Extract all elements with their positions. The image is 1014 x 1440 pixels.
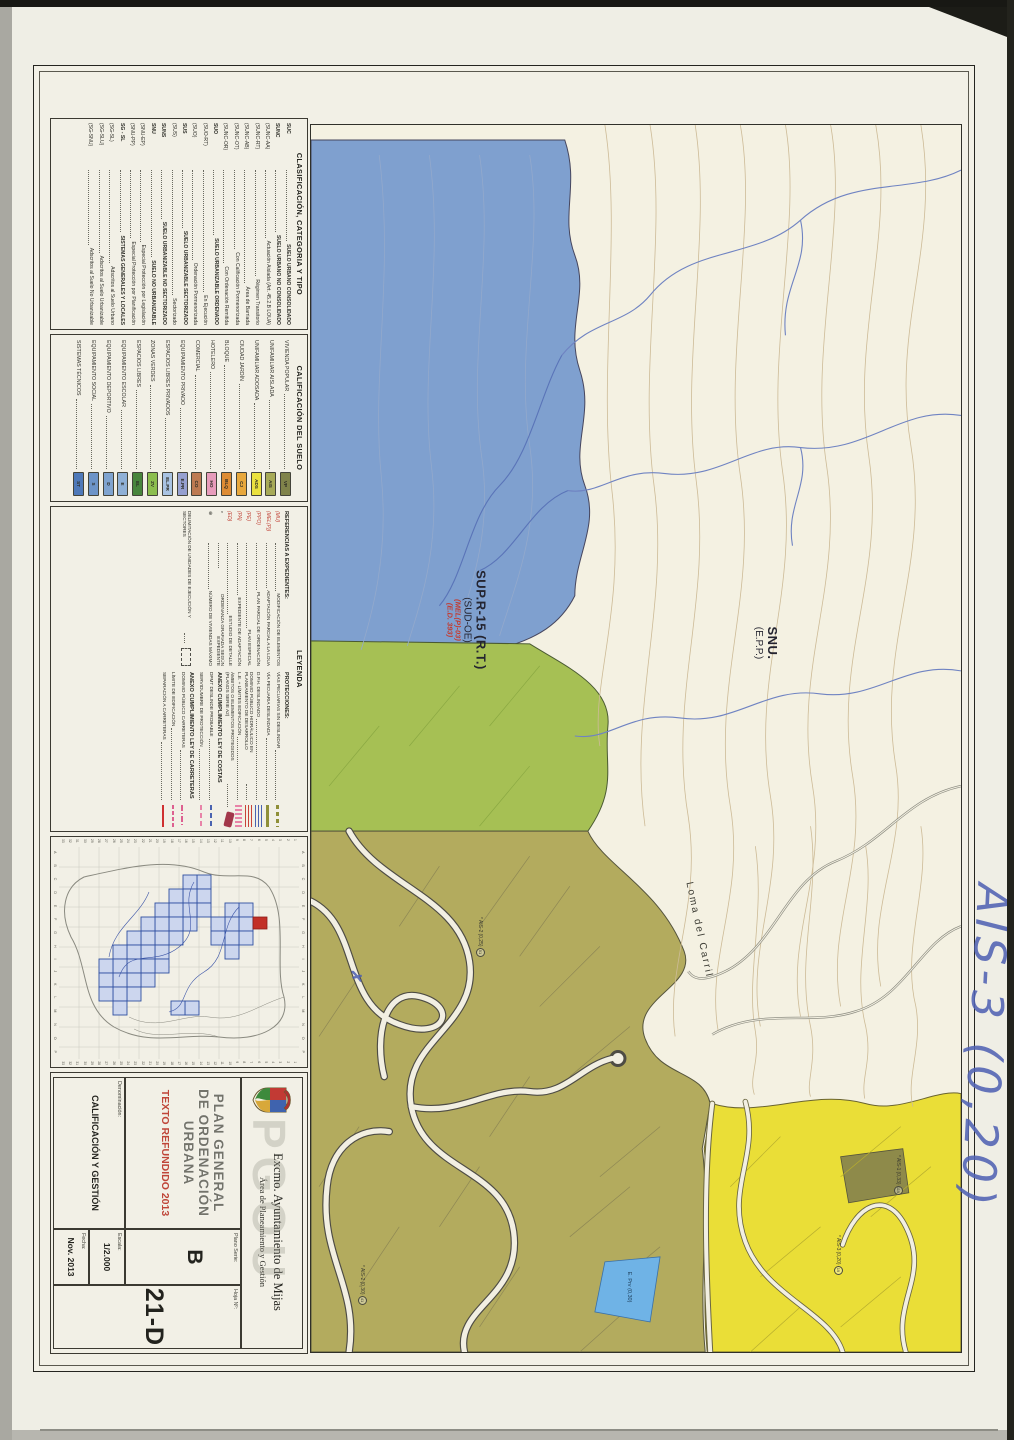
index-number: 17: [177, 839, 181, 843]
clasificacion-code: (SUO): [191, 123, 197, 167]
index-number: 3: [279, 839, 283, 843]
leader-dots: [203, 170, 207, 292]
calificacion-row: SISTEMAS TÉCNICOS ST: [71, 335, 86, 501]
index-letter: G: [301, 931, 305, 934]
index-letter: I: [53, 958, 57, 959]
calificacion-label: COMERCIAL: [194, 340, 200, 372]
leader-dots: [208, 543, 212, 589]
index-number: 8: [242, 1061, 246, 1065]
clasificacion-row: (SUNC-RT) Régimen Transitorio: [251, 119, 261, 329]
legend-swatch-icon: [276, 805, 279, 827]
index-number: 9: [235, 839, 239, 843]
color-chip: D: [103, 472, 114, 496]
clasificacion-row: (SUO) Ordenación Pormenorizada: [189, 119, 199, 329]
legend-swatch-icon: [224, 811, 235, 827]
clasificacion-code: SUC: [285, 123, 291, 167]
color-chip: EL.PR: [162, 472, 173, 496]
calificacion-label: VIVIENDA POPULAR: [283, 340, 289, 391]
calificacion-row: UNIFAMILIAR AISLADA AIS: [263, 335, 278, 501]
parcel-star-icon: *: [478, 917, 484, 919]
index-letter: M: [53, 1009, 57, 1012]
color-chip: HO: [206, 472, 217, 496]
index-number: 25: [119, 839, 123, 843]
index-number: 26: [112, 839, 116, 843]
clasificacion-row: (SUNC-AB) Área de Barriada: [241, 119, 251, 329]
calificacion-label: BLOQUE: [223, 340, 229, 362]
leader-dots: [244, 170, 248, 283]
denominacion-label: Denominación:: [116, 1078, 124, 1228]
costas-row: DPMT DESLINDE PROBABLE: [206, 672, 216, 827]
index-number: 22: [141, 839, 145, 843]
leader-dots: [224, 365, 228, 469]
parcel-label: * AIS-3 (0,20) 19: [834, 1235, 843, 1275]
clasificacion-text: Adscritos al Suelo Urbanizable: [98, 256, 103, 325]
index-number: 27: [105, 1061, 109, 1065]
clasificacion-code: (SUNC-AB): [243, 123, 249, 167]
clasificacion-text: Área de Barriada: [244, 286, 249, 325]
title-block-denominacion-cell: Denominación: CALIFICACIÓN Y GESTIÓN: [53, 1077, 125, 1229]
index-number: 19: [163, 1061, 167, 1065]
referencia-text: ESTUDIO DE DETALLE: [227, 616, 232, 666]
index-number: 18: [170, 839, 174, 843]
index-letter: J: [301, 970, 305, 972]
clasificacion-row: (SNU-EP) Especial Protección por Legisla…: [137, 119, 147, 329]
index-number: 21: [148, 839, 152, 843]
clasificacion-text: Ordenación Pormenorizada: [192, 263, 197, 325]
index-number: 14: [199, 1061, 203, 1065]
index-number: 6: [257, 839, 261, 843]
referencia-code: ⊕: [207, 511, 213, 541]
index-letter: N: [301, 1023, 305, 1026]
scan-edge-top: [0, 0, 1014, 7]
leader-dots: [151, 170, 155, 257]
escala-value: 1/2.000: [102, 1230, 112, 1284]
mijas-crest-icon: [252, 1084, 292, 1116]
calificacion-rows: VIVIENDA POPULAR VP UNIFAMILIAR AISLADA …: [71, 335, 293, 501]
clasificacion-code: SNU: [150, 123, 156, 167]
title-block-hoja-cell: Hoja Nº: 21-D: [53, 1285, 241, 1349]
index-number: 9: [235, 1061, 239, 1065]
index-number: 4: [271, 839, 275, 843]
index-letter: P: [301, 1050, 305, 1053]
calificacion-label: HOTELERO: [209, 340, 215, 369]
serie-label: Plano Serie:: [232, 1230, 240, 1284]
parcel-label: * AIS-2 (0,25) 51: [476, 917, 485, 957]
calificacion-label: EQUIPAMIENTO DEPORTIVO: [105, 340, 111, 413]
color-chip: E.PR: [177, 472, 188, 496]
panel-title-block: PGOU Excmo. Ayuntamiento de Mijas Área d…: [50, 1072, 308, 1354]
leader-dots: [184, 633, 188, 643]
index-letter: L: [53, 996, 57, 998]
index-number: 15: [192, 1061, 196, 1065]
legend-swatch-icon: [210, 805, 212, 827]
index-number: 11: [221, 1061, 225, 1065]
leader-dots: [237, 543, 241, 595]
scan-edge-left: [0, 0, 12, 1440]
clasificacion-text: Especial Protección por Planificación: [129, 241, 134, 325]
panel-calificacion: CALIFICACIÓN DEL SUELO VIVIENDA POPULAR …: [50, 334, 308, 502]
proteccion-row: D.P.H. DESLINDADO: [253, 672, 263, 827]
legend-swatch-icon: [200, 805, 202, 827]
color-chip: S: [88, 472, 99, 496]
carreteras-row: SEPARACIÓN A CARRETERAS: [158, 672, 168, 827]
clasificacion-row: (SUNC-OT) Con Calificación Pormenorizada: [231, 119, 241, 329]
index-letter: I: [301, 958, 305, 959]
leader-dots: [266, 738, 270, 800]
proteccion-row: DOMINIO PÚBLICO HIDRÁULICO EN PLANEAMIEN…: [244, 672, 254, 827]
clasificacion-row: SUO SUELO URBANIZABLE ORDENADO: [210, 119, 220, 329]
parcel-coef: (0,20): [836, 1251, 842, 1264]
clasificacion-text: Especial Protección por Legislación: [140, 245, 145, 325]
calificacion-row: ESPACIOS LIBRES EL: [130, 335, 145, 501]
clasificacion-code: SUS: [181, 123, 187, 167]
calificacion-label: EQUIPAMIENTO SOCIAL: [90, 340, 96, 401]
clasificacion-row: (SG-SL) Adscritos al Suelo Urbano: [106, 119, 116, 329]
costas-rows: DPMT DESLINDE PROBABLE SERVIDUMBRE DE PR…: [196, 672, 215, 827]
index-letter: N: [53, 1023, 57, 1026]
index-number: 23: [134, 839, 138, 843]
clasificacion-row: SG - SL SISTEMAS GENERALES Y LOCALES: [116, 119, 126, 329]
index-number: 28: [97, 839, 101, 843]
proteccion-text: DOMINIO PÚBLICO HIDRÁULICO EN PLANEAMIEN…: [244, 672, 254, 782]
color-chip: EL: [132, 472, 143, 496]
index-number: 29: [90, 839, 94, 843]
clasificacion-text: Adscritos al Suelo Urbano: [109, 266, 114, 325]
leader-dots: [275, 750, 279, 800]
clasificacion-code: SG - SL: [119, 123, 125, 167]
proteccion-row: VÍA PECUARIA DESLINDADA: [263, 672, 273, 827]
hoja-value: 21-D: [139, 1286, 168, 1348]
parcel-number-badge: 19: [834, 1266, 843, 1275]
panel-clasificacion: CLASIFICACIÓN, CATEGORIA Y TIPO SUC SUEL…: [50, 118, 308, 330]
index-number: 21: [148, 1061, 152, 1065]
parcel-coef: (0,30): [360, 1281, 366, 1294]
parcel-number-badge: 41: [358, 1296, 367, 1305]
clasificacion-code: (SUNC-OR): [222, 123, 228, 167]
index-number: 26: [112, 1061, 116, 1065]
zone-code: SNU.: [764, 626, 779, 659]
index-letter: D: [53, 891, 57, 894]
calificacion-row: EQUIPAMIENTO PRIVADO E.PR: [175, 335, 190, 501]
parcel-star-icon: *: [836, 1235, 842, 1237]
proteccion-text: D.P.H. DESLINDADO: [256, 672, 261, 717]
leader-dots: [269, 400, 273, 469]
proteccion-row: ÁMBITOS O ELEMENTOS PROTEGIDOS (PLANOS S…: [224, 672, 234, 827]
color-chip: CJ: [236, 472, 247, 496]
index-number: 32: [68, 1061, 72, 1065]
leader-dots: [172, 170, 176, 295]
index-letter: F: [301, 918, 305, 920]
leader-dots: [91, 404, 95, 469]
leader-dots: [180, 750, 184, 800]
leader-dots: [266, 543, 270, 588]
index-letters-top: ABCDEFGHIJKLMNOP: [301, 851, 305, 1053]
index-number: 2: [286, 1061, 290, 1065]
leader-dots: [255, 170, 259, 276]
index-number: 17: [177, 1061, 181, 1065]
clasificacion-row: (SG-SLU) Adscritos al Suelo Urbanizable: [96, 119, 106, 329]
index-number: 1: [293, 1061, 297, 1065]
index-number: 31: [76, 1061, 80, 1065]
leyenda-protecciones: PROTECCIONES: VÍAS PECUARIAS SIN DESLIND…: [158, 672, 291, 827]
calificacion-row: EQUIPAMIENTO SOCIAL S: [86, 335, 101, 501]
clasificacion-code: (SNU-PP): [129, 123, 135, 167]
leader-dots: [180, 408, 184, 469]
index-letter: B: [53, 864, 57, 867]
title-block-plan-cell: PLAN GENERAL DE ORDENACIÓN URBANA TEXTO …: [125, 1077, 241, 1229]
clasificacion-text: Actuación Aislada (Art. 45.2.B LOUA): [264, 241, 269, 325]
index-number: 14: [199, 839, 203, 843]
leader-dots: [284, 394, 288, 469]
calificacion-row: CIUDAD JARDÍN CJ: [234, 335, 249, 501]
clasificacion-code: (SUNC-RT): [254, 123, 260, 167]
calificacion-row: UNIFAMILIAR ADOSADA ADS: [249, 335, 264, 501]
clasificacion-text: Sectorizado: [171, 298, 176, 325]
index-number: 8: [242, 839, 246, 843]
leader-dots: [237, 737, 241, 800]
index-letter: D: [301, 891, 305, 894]
leader-dots: [265, 170, 269, 238]
index-letter: M: [301, 1009, 305, 1012]
calificacion-label: UNIFAMILIAR AISLADA: [268, 340, 274, 397]
clasificacion-code: (SUNC-OT): [233, 123, 239, 167]
proteccion-text: VÍAS PECUARIAS SIN DESLINDAR: [275, 672, 280, 748]
color-chip: VP: [280, 472, 291, 496]
clasificacion-row: SUS SUELO URBANIZABLE SECTORIZADO: [179, 119, 189, 329]
leader-dots: [254, 403, 258, 469]
clasificacion-code: (SNU-EP): [139, 123, 145, 167]
clasificacion-text: Adscritos al Suelo No Urbanizable: [88, 248, 93, 325]
clasificacion-code: SUO: [212, 123, 218, 167]
referencia-row: * ORDENANZA GRAFIADA SEGÚN EXPEDIENTE: [215, 511, 225, 666]
clasificacion-row: (SUNC-AA) Actuación Aislada (Art. 45.2.B…: [262, 119, 272, 329]
clasificacion-code: (SUNC-AA): [264, 123, 270, 167]
legend-swatch-icon: [172, 805, 174, 827]
calificacion-row: COMERCIAL CO: [189, 335, 204, 501]
legend-swatch-icon: [235, 805, 242, 827]
index-number: 16: [184, 1061, 188, 1065]
index-letter: K: [53, 983, 57, 986]
scan-edge-right: [1007, 0, 1014, 1440]
clasificacion-row: SUNS SUELO URBANIZABLE NO SECTORIZADO: [158, 119, 168, 329]
index-number: 33: [61, 1061, 65, 1065]
index-number: 7: [250, 839, 254, 843]
referencia-row: (PA) EXPEDIENTE DE ADAPTACIÓN: [234, 511, 244, 666]
leader-dots: [171, 728, 175, 800]
index-number: 30: [83, 839, 87, 843]
zone-subcode: (E.P.P.): [753, 626, 764, 659]
title-block-fecha-cell: Fecha: Nov. 2013: [53, 1229, 89, 1285]
leader-dots: [195, 375, 199, 470]
title-block-org-cell: PGOU Excmo. Ayuntamiento de Mijas Área d…: [241, 1077, 303, 1349]
color-chip: AIS: [265, 472, 276, 496]
index-number: 20: [155, 839, 159, 843]
index-number: 7: [250, 1061, 254, 1065]
carreteras-rows: DOMINIO PÚBLICO CARRETERAS LÍMITE DE EDI…: [158, 672, 187, 827]
scan-corner-fold: [929, 7, 1007, 37]
clasificacion-row: SNU SUELO NO URBANIZABLE: [148, 119, 158, 329]
hoja-label: Hoja Nº:: [232, 1286, 240, 1348]
index-number: 30: [83, 1061, 87, 1065]
proteccion-row: VÍAS PECUARIAS SIN DESLINDAR: [272, 672, 282, 827]
clasificacion-text: SUELO URBANIZABLE NO SECTORIZADO: [160, 222, 165, 325]
referencia-code: (PPO): [255, 511, 261, 541]
parcel-label: * AIS-2 (0,30) 41: [358, 1265, 367, 1305]
panel-leyenda: LEYENDA REFERENCIAS A EXPEDIENTES: (MU) …: [50, 506, 308, 832]
index-number: 32: [68, 839, 72, 843]
leader-dots: [256, 543, 260, 590]
index-letter: B: [301, 864, 305, 867]
protecciones-rows: VÍAS PECUARIAS SIN DESLINDAR VÍA PECUARI…: [224, 672, 282, 827]
index-number: 16: [184, 839, 188, 843]
label-sup-r15: SUP.R-15 (R.T.) (SUD-OE) (MEL(P)-03) (E.…: [445, 570, 488, 670]
leyenda-referencias: REFERENCIAS A EXPEDIENTES: (MU) MODIFICA…: [158, 511, 291, 666]
carreteras-text: LÍMITE DE EDIFICACIÓN: [170, 672, 175, 726]
leader-dots: [109, 170, 113, 263]
index-number: 4: [271, 1061, 275, 1065]
color-chip: CO: [191, 472, 202, 496]
index-numbers-left: 1234567891011121314151617181920212223242…: [61, 839, 297, 843]
referencia-row: (MEL(P)) ADAPTACIÓN PARCIAL A LA LOUA: [263, 511, 273, 666]
referencia-text: NÚMERO DE VIVIENDAS MÁXIMO: [208, 591, 213, 666]
leader-dots: [210, 372, 214, 469]
referencia-code: (MEL(P)): [265, 511, 271, 541]
index-letter: O: [301, 1037, 305, 1040]
clasificacion-code: (SG-SNU): [87, 123, 93, 167]
referencia-text: MODIFICACIÓN DE ELEMENTOS: [275, 593, 280, 666]
referencia-code: (PE): [245, 511, 251, 541]
index-number: 19: [163, 839, 167, 843]
color-chip: ST: [73, 472, 84, 496]
proteccion-row: L.E. + LÍMITES EDIFICACIÓN: [234, 672, 244, 827]
index-number: 18: [170, 1061, 174, 1065]
escala-label: Escala:: [116, 1230, 124, 1284]
leader-dots: [227, 543, 231, 614]
calificacion-label: ZONAS VERDES: [149, 340, 155, 382]
leader-dots: [246, 543, 250, 628]
zone-expediente-1: (MEL(P)-03): [453, 570, 461, 670]
handwritten-code: AIS-3: [960, 882, 1014, 1024]
index-number: 10: [228, 1061, 232, 1065]
plan-sheet: SUP.R-15 (R.T.) (SUD-OE) (MEL(P)-03) (E.…: [33, 65, 975, 1372]
clasificacion-code: (SG-SL): [108, 123, 114, 167]
index-letter: E: [53, 905, 57, 908]
referencia-code: (ED): [226, 511, 232, 541]
org-name: Excmo. Ayuntamiento de Mijas: [271, 1122, 286, 1342]
clasificacion-text: En Ejecución: [202, 295, 207, 325]
calificacion-label: UNIFAMILIAR ADOSADA: [253, 340, 259, 400]
parcel-star-icon: *: [360, 1265, 366, 1267]
clasificacion-rows: SUC SUELO URBANO CONSOLIDADO SUNC SUELO …: [85, 119, 293, 329]
clasificacion-row: (SNU-PP) Especial Protección por Planifi…: [127, 119, 137, 329]
index-number: 33: [61, 839, 65, 843]
plan-title-line1: PLAN GENERAL: [211, 1078, 226, 1228]
referencia-text: ORDENANZA GRAFIADA SEGÚN EXPEDIENTE: [215, 570, 225, 666]
referencia-row: ⊕ NÚMERO DE VIVIENDAS MÁXIMO: [205, 511, 215, 666]
index-number: 10: [228, 839, 232, 843]
legend-swatch-icon: [245, 805, 252, 827]
index-number: 13: [206, 1061, 210, 1065]
index-number: 31: [76, 839, 80, 843]
index-number: 3: [279, 1061, 283, 1065]
leader-dots: [76, 399, 80, 469]
zone-code: SUP.R-15 (R.T.): [473, 570, 488, 670]
label-snu: SNU. (E.P.P.): [753, 626, 779, 659]
leader-dots: [227, 784, 231, 807]
index-number: 23: [134, 1061, 138, 1065]
delimitacion-text: DELIMITACIÓN DE UNIDADES DE EJECUCIÓN Y …: [182, 511, 192, 631]
clasificacion-text: SUELO URBANIZABLE ORDENADO: [212, 238, 217, 325]
costas-text: DPMT DESLINDE PROBABLE: [208, 672, 213, 737]
clasificacion-code: SUNS: [160, 123, 166, 167]
parcel-number-badge: 51: [476, 948, 485, 957]
index-number: 22: [141, 1061, 145, 1065]
referencias-rows: (MU) MODIFICACIÓN DE ELEMENTOS (MEL(P)) …: [205, 511, 282, 666]
current-sheet-marker: [253, 917, 267, 929]
index-letter: H: [301, 945, 305, 948]
leader-dots: [209, 739, 213, 800]
leader-dots: [223, 170, 227, 263]
leader-dots: [161, 170, 165, 219]
parcel-code: AIS-2: [360, 1268, 366, 1281]
handwritten-annotation: AIS-3 (0,20): [849, 877, 1014, 1314]
leader-dots: [182, 170, 186, 228]
index-number: 24: [126, 1061, 130, 1065]
index-number: 12: [213, 839, 217, 843]
scanned-map-sheet: { "sheet": { "clasificacion": { "title":…: [0, 0, 1014, 1440]
index-letters-bottom: ABCDEFGHIJKLMNOP: [53, 851, 57, 1053]
index-letter: C: [301, 878, 305, 881]
texto-refundido: TEXTO REFUNDIDO 2013: [159, 1078, 171, 1228]
referencia-row: (ED) ESTUDIO DE DETALLE: [224, 511, 234, 666]
label-eprv: E. Prv (0,30): [626, 1272, 632, 1303]
referencias-title: REFERENCIAS A EXPEDIENTES:: [283, 511, 289, 666]
leader-dots: [130, 170, 134, 238]
legend-swatch-icon: [255, 805, 262, 827]
index-letter: H: [53, 945, 57, 948]
parcel-code: AIS-2: [478, 920, 484, 933]
index-number: 24: [126, 839, 130, 843]
fecha-value: Nov. 2013: [66, 1230, 76, 1284]
clasificacion-row: SUC SUELO URBANO CONSOLIDADO: [283, 119, 293, 329]
leader-dots: [120, 170, 124, 232]
clasificacion-row: (SUO-RT) En Ejecución: [199, 119, 209, 329]
leader-dots: [121, 410, 125, 469]
calificacion-row: BLOQUE BLQ: [219, 335, 234, 501]
calificacion-label: EQUIPAMIENTO PRIVADO: [179, 340, 185, 405]
title-block-serie-cell: Plano Serie: B: [125, 1229, 241, 1285]
index-numbers-right: 1234567891011121314151617181920212223242…: [61, 1061, 297, 1065]
index-number: 6: [257, 1061, 261, 1065]
index-number: 25: [119, 1061, 123, 1065]
calificacion-row: VIVIENDA POPULAR VP: [278, 335, 293, 501]
clasificacion-row: (SUS) Sectorizado: [168, 119, 178, 329]
title-block-escala-cell: Escala: 1/2.000: [89, 1229, 125, 1285]
carreteras-text: SEPARACIÓN A CARRETERAS: [161, 672, 166, 740]
carreteras-text: DOMINIO PÚBLICO CARRETERAS: [180, 672, 185, 748]
referencia-row: (MU) MODIFICACIÓN DE ELEMENTOS: [272, 511, 282, 666]
index-letter: L: [301, 996, 305, 998]
protecciones-title: PROTECCIONES:: [283, 672, 289, 827]
fecha-label: Fecha:: [80, 1230, 88, 1284]
color-chip: ZV: [147, 472, 158, 496]
calificacion-label: CIUDAD JARDÍN: [238, 340, 244, 381]
index-number: 5: [264, 839, 268, 843]
leader-dots: [99, 170, 103, 253]
costas-title: ANEXO CUMPLIMIENTO LEY DE COSTAS: [216, 672, 222, 827]
legend-swatch-icon: [162, 805, 164, 827]
clasificacion-text: Régimen Transitorio: [254, 279, 259, 325]
